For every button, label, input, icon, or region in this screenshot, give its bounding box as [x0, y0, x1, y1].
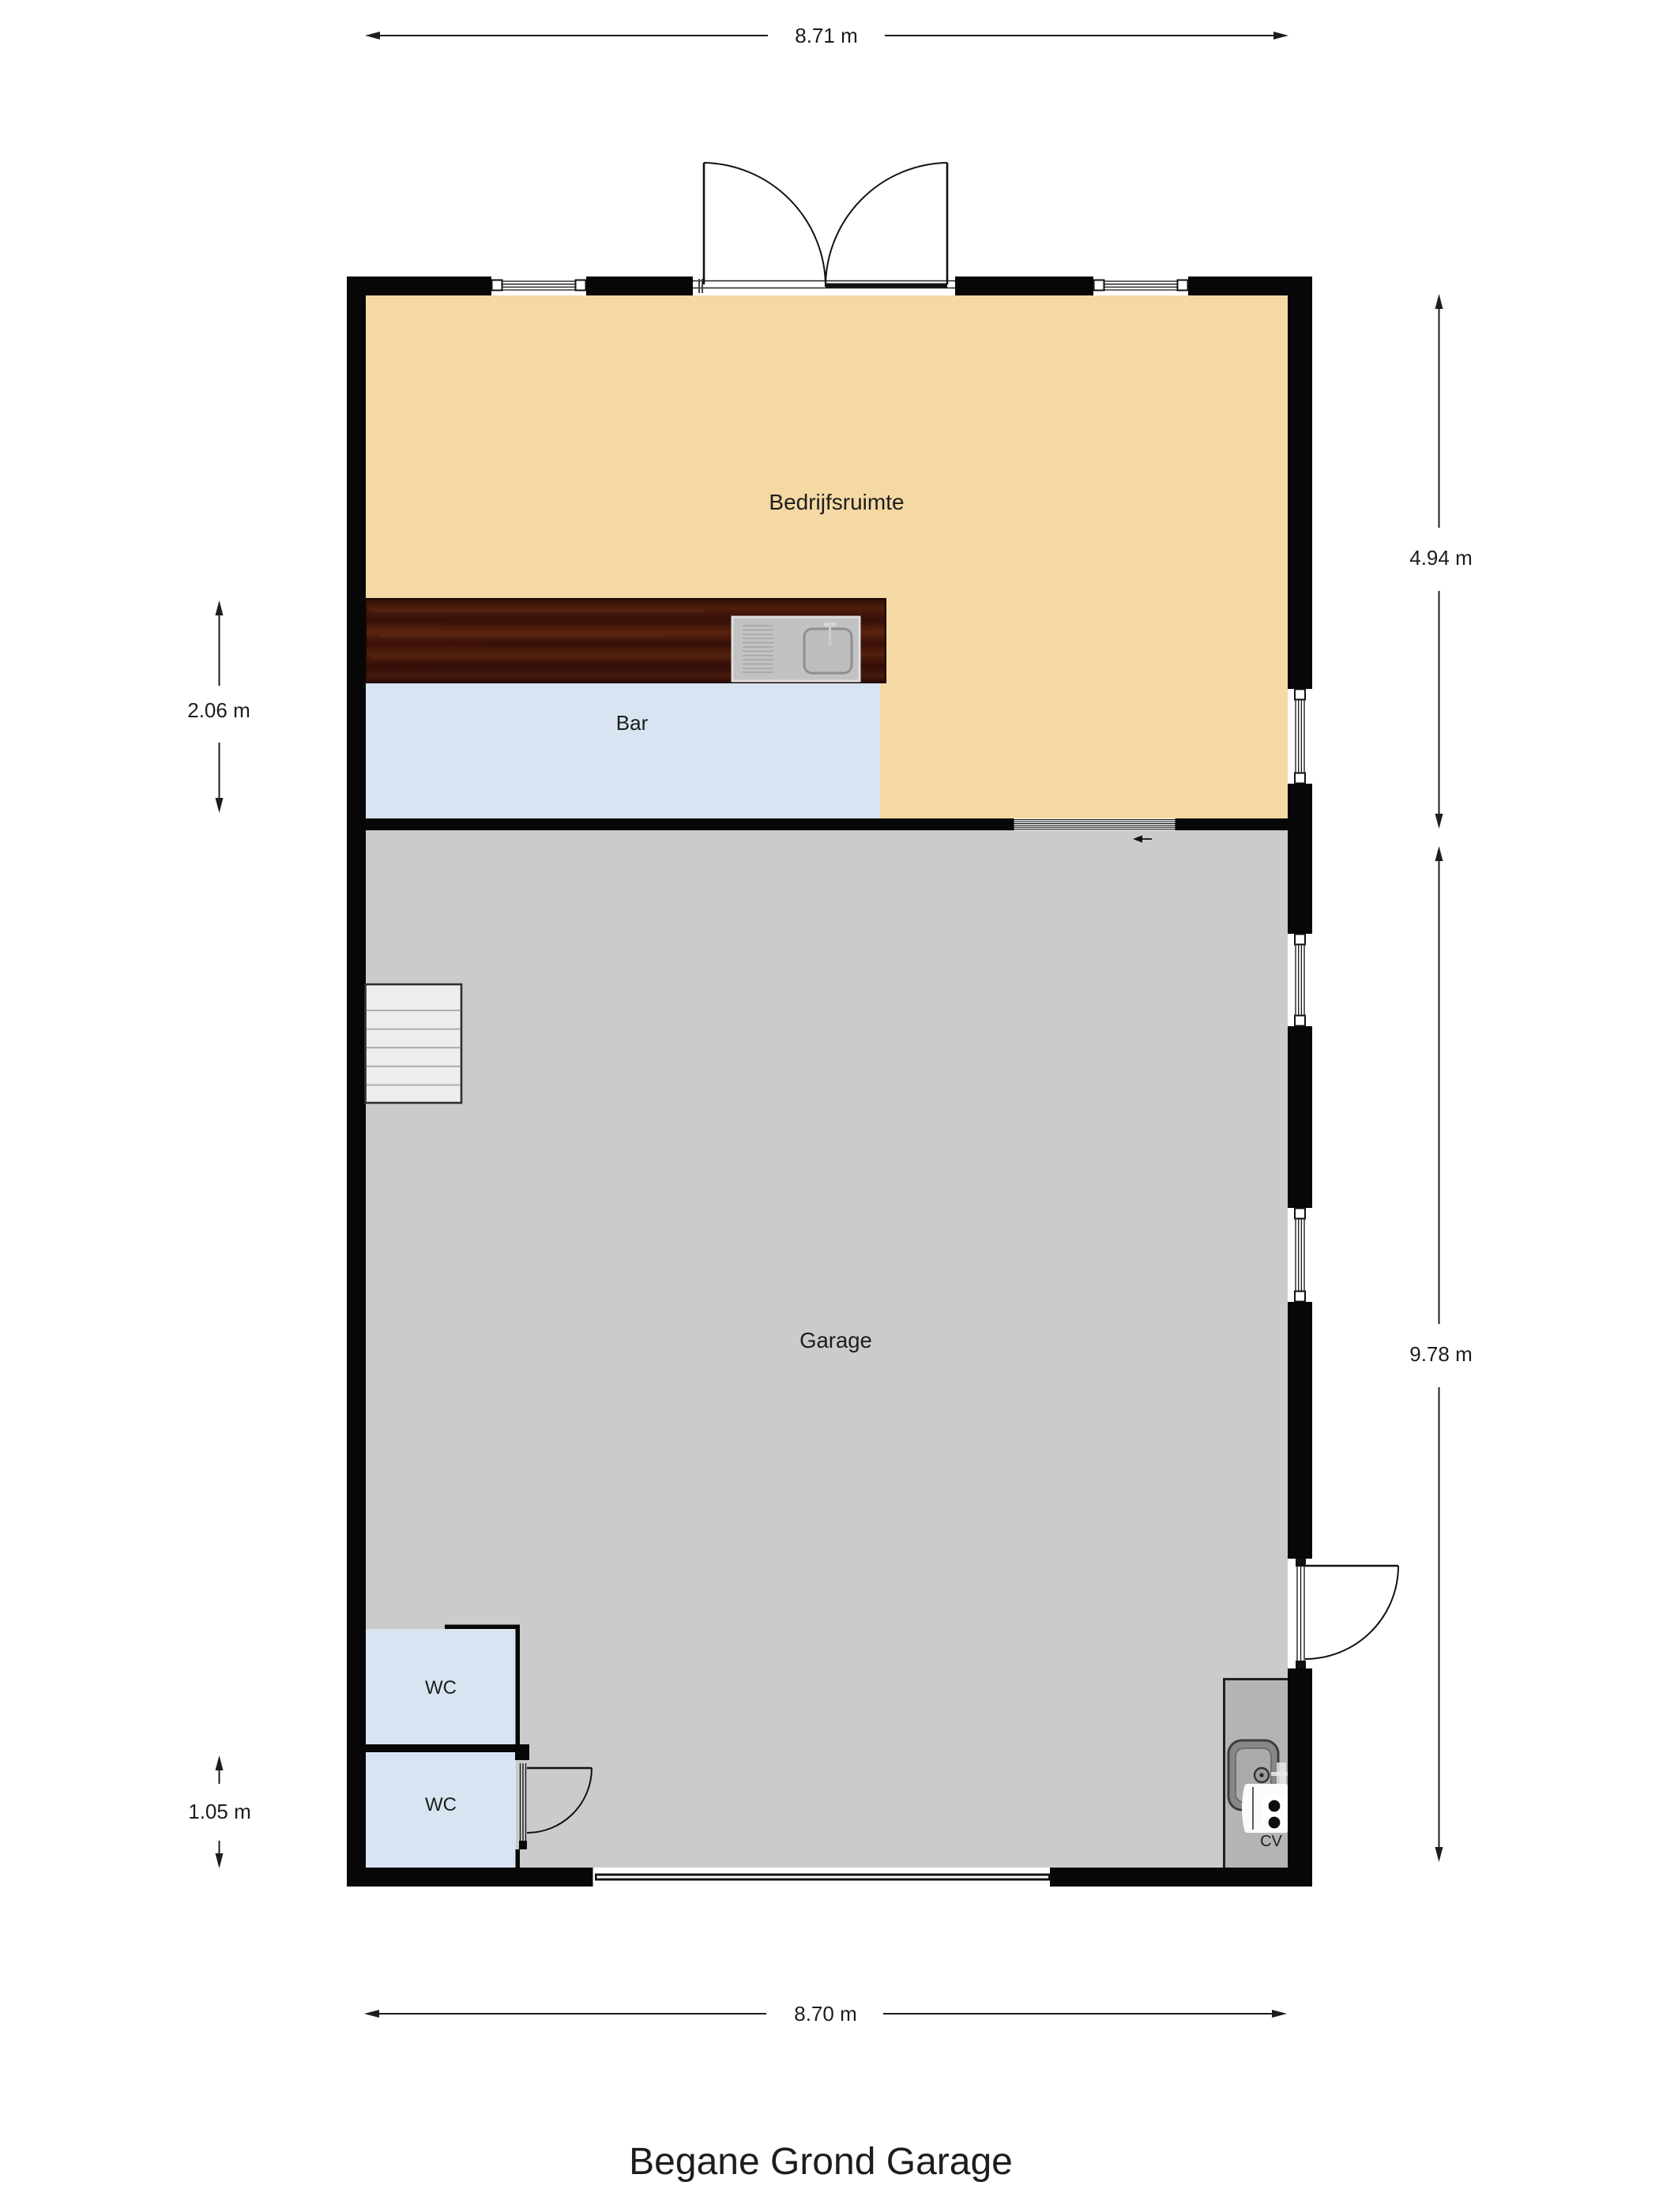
svg-text:Bedrijfsruimte: Bedrijfsruimte — [769, 490, 904, 514]
svg-text:8.71 m: 8.71 m — [795, 24, 858, 47]
svg-text:4.94 m: 4.94 m — [1409, 546, 1473, 570]
svg-text:CV: CV — [1260, 1833, 1282, 1850]
svg-text:Garage: Garage — [799, 1328, 872, 1352]
svg-text:Bar: Bar — [616, 711, 649, 735]
svg-text:WC: WC — [425, 1677, 457, 1698]
svg-text:Begane Grond Garage: Begane Grond Garage — [629, 2141, 1013, 2183]
svg-text:8.70 m: 8.70 m — [794, 2002, 857, 2026]
svg-text:WC: WC — [425, 1794, 457, 1815]
svg-text:2.06 m: 2.06 m — [187, 698, 250, 722]
svg-text:1.05 m: 1.05 m — [188, 1800, 251, 1823]
svg-text:9.78 m: 9.78 m — [1409, 1342, 1473, 1366]
